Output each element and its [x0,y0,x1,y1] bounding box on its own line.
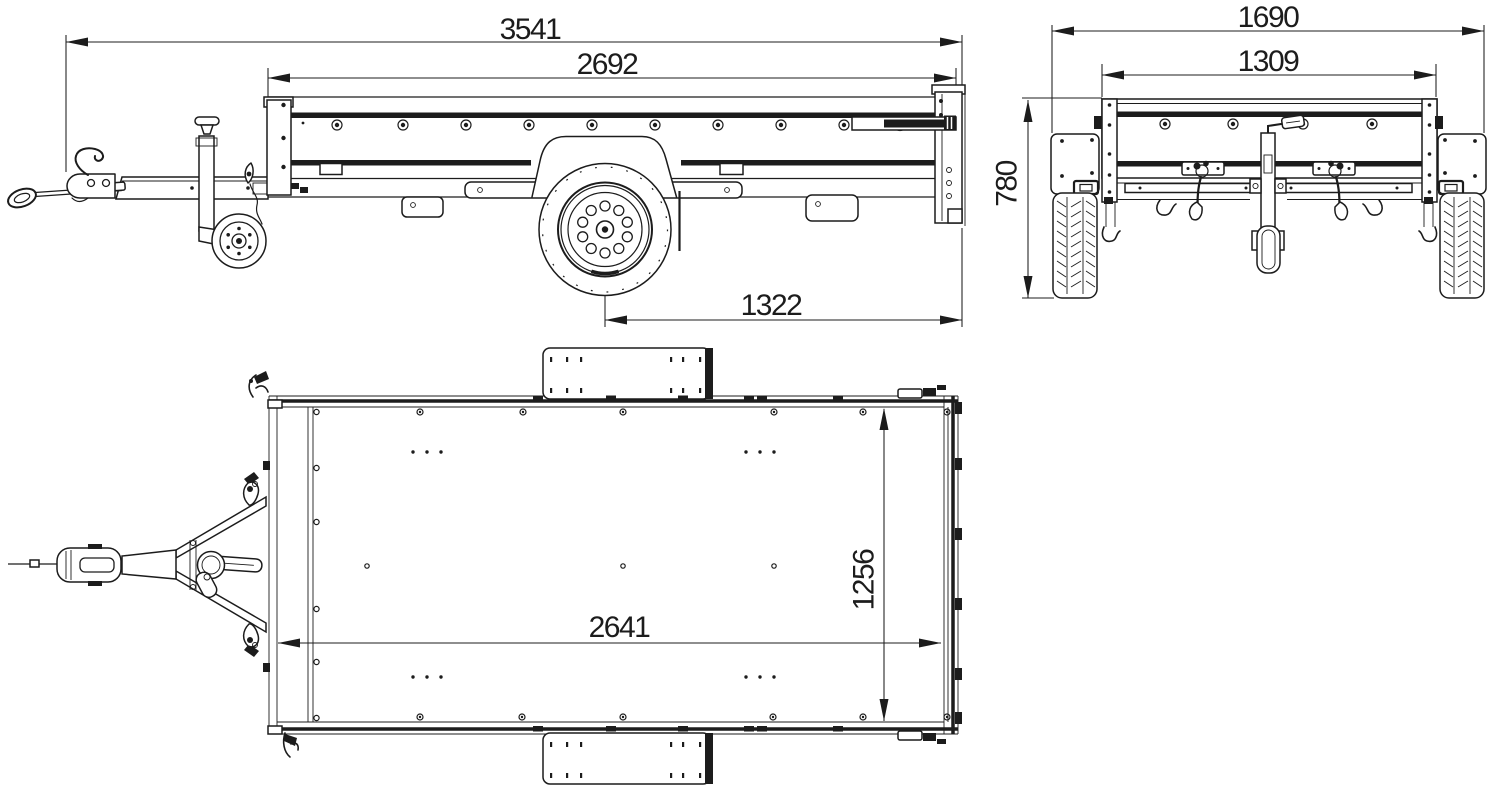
rear-fender-right [1438,134,1486,194]
top-dim-bed-length: 2641 [278,611,941,648]
coupler-handle [76,148,103,175]
top-view: 2641 1256 [8,348,962,784]
side-dim-bed-length: 2692 [268,48,956,99]
coupling-head-top [57,544,121,586]
front-wall-bolts [314,409,319,720]
side-panel-bolts [302,120,906,131]
dim-label-top-bed-width: 1256 [848,549,881,611]
rear-dim-body-width: 1309 [1102,45,1436,97]
rear-panel [852,85,965,226]
rear-fender-left [1051,134,1099,194]
coupling-head [67,148,115,201]
rear-wheel-right [1440,193,1484,298]
top-dim-bed-width: 1256 [848,408,889,721]
mudguard-top [543,348,713,399]
dim-label-height: 780 [991,160,1024,206]
road-wheel [539,164,671,296]
dim-label-bed-length: 2692 [577,48,639,81]
corner-latch-front-bottom [284,733,299,757]
tailgate-hinges [955,402,962,724]
jockey-wheel-top [194,552,263,600]
rear-wheel-left [1053,193,1097,298]
arm-latch-bottom [244,624,259,657]
dim-label-axle-to-rear: 1322 [741,289,803,322]
front-panel [264,97,308,195]
dim-label-top-bed-length: 2641 [589,611,651,644]
drawing-canvas: 3541 2692 1322 [0,0,1500,792]
trailer-dimension-drawing: 3541 2692 1322 [0,0,1500,792]
side-view: 3541 2692 1322 [5,13,965,327]
edge-clips [533,396,843,732]
dim-label-body-width: 1309 [1238,45,1300,78]
drawbar-top [8,472,266,657]
mudguard-bottom [543,733,713,784]
corner-latch-rear-bottom [898,731,946,744]
corner-latch-front-top [249,371,269,397]
dim-label-overall-width: 1690 [1238,1,1300,34]
arm-latch-top [244,472,259,505]
rear-view: 1690 1309 780 [991,1,1487,298]
dim-label-overall-length: 3541 [500,13,562,46]
drawbar [116,177,268,199]
tailgate-latch-bar [852,116,956,131]
deck-holes [365,450,776,678]
